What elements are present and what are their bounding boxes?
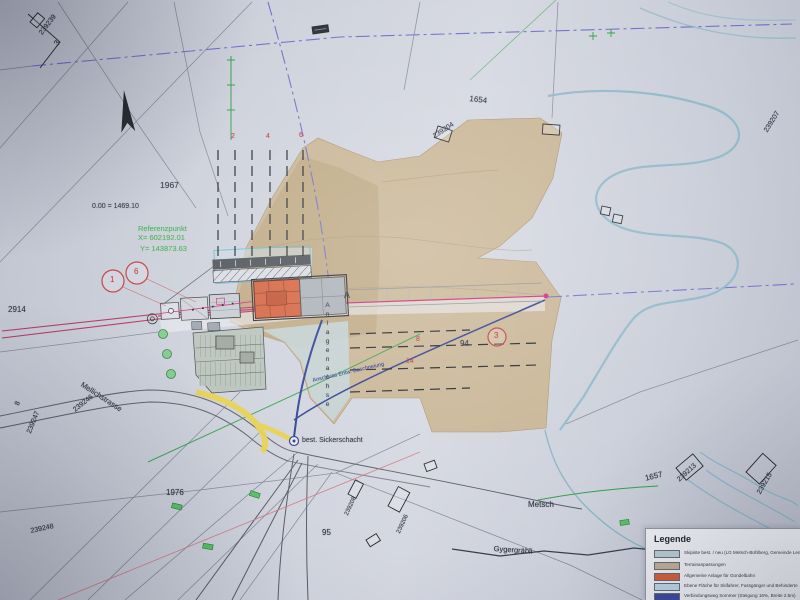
legend-label: Terrainanpassungen bbox=[684, 562, 726, 567]
gridline-label-14: 14 bbox=[406, 358, 414, 365]
gridline-label-4: 4 bbox=[266, 133, 270, 140]
legend-row: Skipiste best. / neu (LG Metsch-Bühlberg… bbox=[646, 550, 800, 558]
legend-swatch-skipiste bbox=[654, 550, 680, 558]
parcel-label-1976: 1976 bbox=[166, 488, 184, 497]
site-plan-photo: 239239 3 1654 239204 239207 1967 0.00 = … bbox=[0, 0, 800, 600]
legend-label: Allgemeine Anlage für Gondelbahn bbox=[684, 573, 755, 578]
marker-label-1: 1 bbox=[110, 275, 114, 284]
parcel-label-94: 94 bbox=[460, 339, 469, 348]
legend-label: Ebene Fläche für Skifahrer, Fussgänger u… bbox=[684, 583, 798, 588]
legend-row: Ebene Fläche für Skifahrer, Fussgänger u… bbox=[646, 583, 800, 591]
parcel-label-2914: 2914 bbox=[8, 305, 26, 314]
legend-swatch-terrain bbox=[654, 562, 680, 570]
reference-point-title: Referenzpunkt bbox=[138, 224, 187, 233]
legend-title: Legende bbox=[654, 534, 691, 544]
reference-point-y: Y= 143873.63 bbox=[140, 244, 187, 253]
legend-row: Terrainanpassungen bbox=[646, 562, 800, 570]
reference-point-x: X= 602192.01 bbox=[138, 233, 185, 242]
gridline-label-2: 2 bbox=[231, 133, 235, 140]
tree-symbols bbox=[159, 330, 176, 379]
site-plan-drawing bbox=[0, 0, 800, 600]
parking-area bbox=[193, 327, 266, 393]
parcel-label-95: 95 bbox=[322, 528, 331, 537]
place-label-metsch: Metsch bbox=[528, 500, 554, 509]
marker-label-3: 3 bbox=[494, 331, 498, 340]
axis-label-anlagenachse: Anlagenachse bbox=[324, 302, 331, 410]
legend-row: Allgemeine Anlage für Gondelbahn bbox=[646, 573, 800, 581]
legend-label: Verbindungsweg Sommer (Steigung 16%, Bre… bbox=[684, 593, 796, 598]
parcel-label-1967: 1967 bbox=[160, 180, 179, 190]
legend-swatch-gondelbahn bbox=[654, 573, 680, 581]
marker-label-6: 6 bbox=[134, 267, 138, 276]
gridline-label-6: 6 bbox=[299, 132, 303, 139]
roads-streams-teal bbox=[545, 2, 798, 560]
elevation-note: 0.00 = 1469.10 bbox=[92, 203, 139, 210]
roads bbox=[0, 390, 718, 600]
legend-swatch-ebene-flaeche bbox=[654, 583, 680, 591]
note-sickerschacht: best. Sickerschacht bbox=[302, 437, 363, 444]
legend-panel: Legende Skipiste best. / neu (LG Metsch-… bbox=[645, 528, 800, 600]
legend-label: Skipiste best. / neu (LG Metsch-Bühlberg… bbox=[684, 550, 800, 555]
axis-point-a: A bbox=[344, 290, 350, 300]
gridline-label-8: 8 bbox=[416, 336, 420, 343]
